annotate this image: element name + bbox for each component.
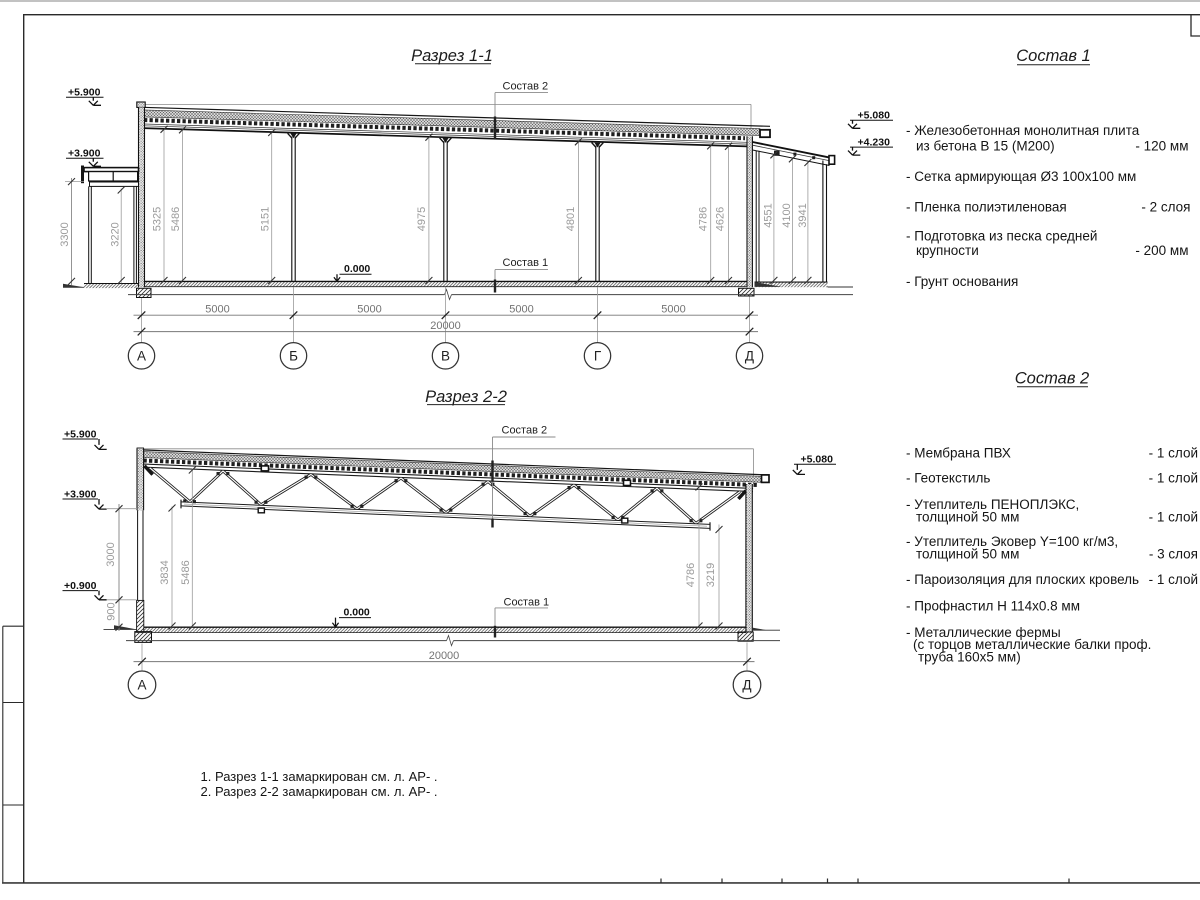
svg-text:Состав 1: Состав 1 [503,257,549,269]
svg-text:- 1 слой: - 1 слой [1149,471,1198,486]
svg-text:4626: 4626 [715,207,727,231]
svg-text:5000: 5000 [509,304,533,316]
svg-text:3000: 3000 [105,542,117,566]
svg-text:+5.080: +5.080 [858,110,891,122]
svg-text:Состав 1: Состав 1 [1016,47,1090,65]
svg-text:3300: 3300 [59,222,71,246]
svg-text:- 1 слой: - 1 слой [1149,510,1198,525]
svg-text:3834: 3834 [159,560,171,584]
svg-text:4551: 4551 [762,203,774,227]
svg-text:4786: 4786 [697,207,709,231]
svg-text:А: А [137,349,146,364]
svg-text:толщиной 50 мм: толщиной 50 мм [916,546,1019,561]
svg-text:5325: 5325 [152,207,164,231]
svg-text:Д: Д [745,349,754,364]
svg-text:- 1 слой: - 1 слой [1149,446,1198,461]
svg-text:- Пленка полиэтиленовая: - Пленка полиэтиленовая [906,200,1067,215]
svg-text:Б: Б [289,349,298,364]
svg-text:Разрез 1-1: Разрез 1-1 [411,47,493,65]
svg-text:4100: 4100 [781,203,793,227]
svg-text:Г: Г [594,349,602,364]
svg-text:крупности: крупности [916,243,979,258]
svg-text:Состав 2: Состав 2 [502,424,548,436]
svg-text:+3.900: +3.900 [68,148,101,160]
svg-text:- Железобетонная монолитная п: - Железобетонная монолитная плита [906,123,1140,138]
svg-text:5486: 5486 [170,207,182,231]
svg-text:3219: 3219 [705,563,717,587]
svg-text:5000: 5000 [661,304,685,316]
svg-text:1. Разрез 1-1 замаркирован см.: 1. Разрез 1-1 замаркирован см. л. АР- . [201,769,438,784]
svg-text:5151: 5151 [259,207,271,231]
svg-text:- Пароизоляция для плоских кро: - Пароизоляция для плоских кровель [906,572,1139,587]
svg-text:Состав 2: Состав 2 [503,81,549,93]
svg-text:5000: 5000 [205,304,229,316]
svg-text:- 2 слоя: - 2 слоя [1141,200,1190,215]
svg-text:Разрез 2-2: Разрез 2-2 [425,388,507,406]
svg-text:20000: 20000 [429,650,460,662]
svg-text:толщиной 50 мм: толщиной 50 мм [916,510,1019,525]
svg-text:5000: 5000 [357,304,381,316]
svg-text:+4.230: +4.230 [858,136,891,148]
svg-text:- Профнастил Н 114х0.8 мм: - Профнастил Н 114х0.8 мм [906,598,1080,613]
svg-text:- 120 мм: - 120 мм [1135,138,1188,153]
svg-text:+5.900: +5.900 [68,87,101,99]
svg-text:- Подготовка из песка средней: - Подготовка из песка средней [906,229,1097,244]
svg-text:труба 160х5 мм): труба 160х5 мм) [918,649,1021,664]
svg-text:- Геотекстиль: - Геотекстиль [906,471,990,486]
svg-text:А: А [137,678,146,693]
svg-text:Состав 1: Состав 1 [504,596,550,608]
svg-text:- 1 слой: - 1 слой [1149,572,1198,587]
svg-text:- 200 мм: - 200 мм [1135,243,1188,258]
svg-text:- Сетка армирующая Ø3 100х100: - Сетка армирующая Ø3 100х100 мм [906,169,1136,184]
svg-text:0.000: 0.000 [344,607,370,619]
svg-text:4786: 4786 [685,563,697,587]
svg-text:2. Разрез 2-2 замаркирован см.: 2. Разрез 2-2 замаркирован см. л. АР- . [201,784,438,799]
svg-text:из бетона В 15 (М200): из бетона В 15 (М200) [916,138,1055,153]
svg-text:3941: 3941 [797,203,809,227]
svg-text:900: 900 [105,602,117,620]
svg-text:- Грунт основания: - Грунт основания [906,274,1018,289]
svg-text:Состав 2: Состав 2 [1015,370,1089,388]
svg-text:- Мембрана ПВХ: - Мембрана ПВХ [906,446,1011,461]
svg-text:Д: Д [742,678,751,693]
svg-text:5486: 5486 [180,560,192,584]
svg-text:4801: 4801 [565,207,577,231]
svg-text:4975: 4975 [416,207,428,231]
svg-text:В: В [441,349,450,364]
svg-text:- 3 слоя: - 3 слоя [1149,546,1198,561]
svg-text:20000: 20000 [430,320,461,332]
svg-text:0.000: 0.000 [344,263,370,275]
svg-text:+5.080: +5.080 [801,454,834,466]
svg-text:3220: 3220 [110,222,122,246]
